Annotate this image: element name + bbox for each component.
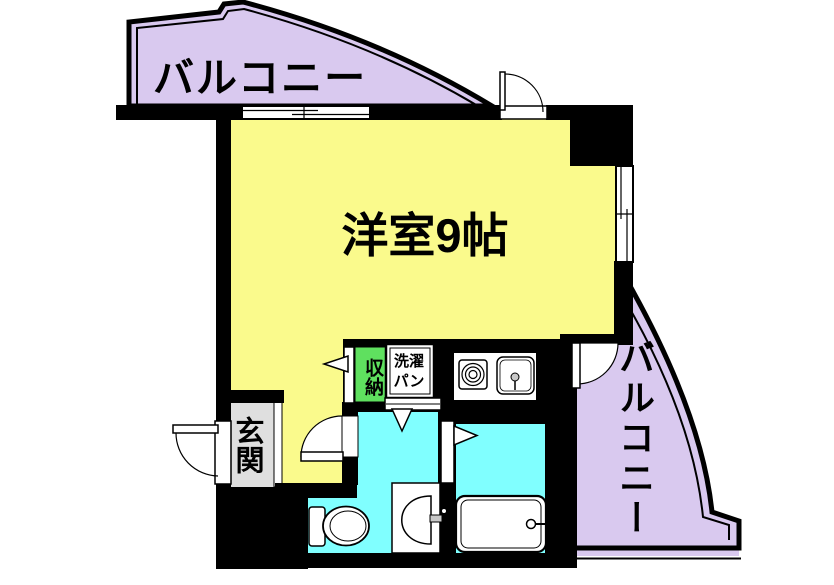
laundry-pan-label: 洗濯パン [391, 352, 427, 391]
door-leaf [572, 343, 580, 388]
door-entrance [173, 421, 231, 484]
door-leaf [301, 452, 343, 461]
floor-plan-drawing [0, 0, 834, 585]
toilet-icon [309, 507, 369, 547]
entrance-label: 玄関 [237, 404, 268, 486]
balcony-top-label: バルコニー [153, 44, 385, 104]
floor-plan: バルコニー 洋室9帖 収納 洗濯パン 玄関 PS バルコニー [0, 0, 834, 585]
faucet-icon [511, 373, 519, 381]
kitchen-sink-icon [497, 357, 534, 394]
door-leaf [500, 72, 505, 110]
main-room-label: 洋室9帖 [318, 197, 532, 266]
kitchen-counter [453, 352, 537, 401]
entrance-step [274, 402, 282, 487]
closet-label: 収納 [360, 349, 382, 404]
pipe-space-label: PS [227, 499, 254, 557]
door-swing-arc [176, 433, 218, 476]
window-top-sliding [242, 106, 370, 119]
window-right-sliding [616, 166, 633, 262]
balcony-right-label: バルコニー [622, 327, 660, 551]
closet-door [344, 347, 354, 403]
door-top-right [500, 72, 547, 119]
washbasin-icon [392, 483, 447, 553]
bathtub-icon [456, 496, 547, 552]
stove-burner-icon [459, 360, 487, 389]
faucet-icon [527, 520, 536, 529]
door-leaf [173, 425, 218, 433]
faucet-icon [430, 515, 442, 522]
